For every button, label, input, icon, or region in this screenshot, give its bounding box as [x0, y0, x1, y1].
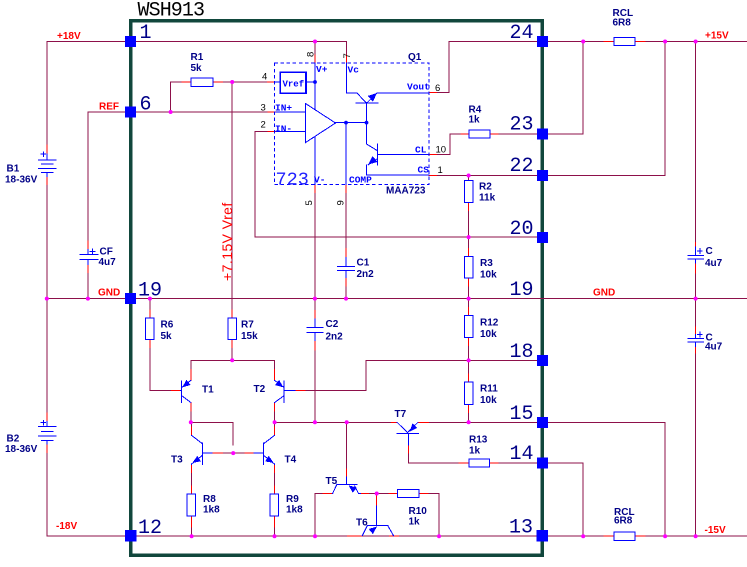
svg-text:R11: R11 — [480, 384, 498, 395]
svg-text:2: 2 — [261, 120, 266, 131]
svg-text:-18V: -18V — [56, 521, 77, 532]
svg-text:15k: 15k — [241, 331, 258, 342]
svg-text:T2: T2 — [254, 384, 266, 395]
svg-text:2n2: 2n2 — [357, 269, 375, 280]
svg-text:T5: T5 — [326, 476, 338, 487]
svg-text:4u7: 4u7 — [705, 342, 723, 353]
svg-text:19: 19 — [138, 279, 162, 302]
svg-text:18-36V: 18-36V — [5, 444, 38, 455]
svg-text:Vref: Vref — [283, 80, 305, 90]
svg-text:Vc: Vc — [348, 65, 360, 76]
svg-text:T6: T6 — [356, 518, 368, 529]
svg-text:R8: R8 — [203, 494, 216, 505]
svg-text:4u7: 4u7 — [99, 257, 117, 268]
svg-text:4: 4 — [262, 72, 267, 83]
svg-text:723: 723 — [276, 170, 309, 191]
svg-text:6R8: 6R8 — [614, 516, 633, 527]
svg-text:1k: 1k — [469, 446, 481, 457]
svg-text:13: 13 — [509, 517, 533, 540]
svg-text:R1: R1 — [191, 52, 204, 63]
svg-text:5k: 5k — [191, 63, 203, 74]
svg-text:10k: 10k — [480, 270, 497, 281]
svg-text:5: 5 — [304, 200, 315, 205]
svg-text:R9: R9 — [286, 494, 299, 505]
svg-text:6: 6 — [435, 83, 440, 94]
svg-text:1k: 1k — [409, 517, 421, 528]
svg-text:C2: C2 — [326, 319, 339, 330]
svg-text:B2: B2 — [7, 434, 20, 445]
svg-text:10: 10 — [436, 145, 447, 156]
svg-text:22: 22 — [510, 155, 534, 178]
svg-text:9: 9 — [336, 200, 347, 205]
svg-text:IN+: IN+ — [275, 103, 292, 114]
svg-text:23: 23 — [510, 114, 534, 137]
svg-text:CS: CS — [418, 165, 430, 176]
svg-text:+18V: +18V — [57, 31, 81, 42]
svg-text:5k: 5k — [161, 331, 173, 342]
svg-text:REF: REF — [99, 102, 119, 113]
svg-text:T4: T4 — [285, 455, 297, 466]
svg-text:14: 14 — [510, 443, 534, 466]
svg-text:12: 12 — [138, 517, 162, 540]
svg-text:18-36V: 18-36V — [5, 175, 38, 186]
svg-text:C: C — [706, 246, 713, 257]
svg-text:T7: T7 — [395, 409, 407, 420]
svg-text:18: 18 — [510, 341, 534, 364]
svg-text:R6: R6 — [161, 320, 174, 331]
svg-text:1k8: 1k8 — [286, 505, 303, 516]
svg-text:CL: CL — [415, 145, 427, 156]
svg-text:R3: R3 — [480, 258, 493, 269]
svg-text:3: 3 — [261, 103, 266, 114]
svg-text:WSH913: WSH913 — [138, 0, 205, 23]
svg-text:R7: R7 — [241, 320, 254, 331]
svg-text:V+: V+ — [316, 64, 328, 75]
svg-text:R2: R2 — [479, 182, 492, 193]
svg-text:1: 1 — [438, 165, 443, 176]
svg-text:6: 6 — [140, 93, 152, 116]
svg-text:19: 19 — [510, 279, 534, 302]
svg-text:R10: R10 — [409, 506, 428, 517]
svg-text:CF: CF — [100, 247, 113, 258]
svg-text:1k8: 1k8 — [203, 505, 220, 516]
svg-text:MAA723: MAA723 — [386, 186, 426, 197]
svg-text:C1: C1 — [357, 258, 370, 269]
svg-text:T1: T1 — [202, 385, 214, 396]
svg-text:1k: 1k — [469, 115, 481, 126]
svg-text:11k: 11k — [479, 193, 496, 204]
svg-text:4u7: 4u7 — [705, 258, 723, 269]
svg-text:T3: T3 — [171, 455, 183, 466]
svg-text:8: 8 — [306, 52, 317, 57]
svg-text:+7.15V Vref: +7.15V Vref — [219, 202, 235, 281]
svg-text:+15V: +15V — [705, 31, 729, 42]
svg-text:IN-: IN- — [275, 123, 292, 134]
svg-text:24: 24 — [510, 22, 534, 45]
svg-text:7: 7 — [342, 53, 353, 58]
svg-text:GND: GND — [98, 288, 120, 299]
svg-text:COMP: COMP — [349, 175, 372, 186]
svg-text:B1: B1 — [7, 164, 20, 175]
svg-text:R12: R12 — [480, 318, 499, 329]
svg-text:Q1: Q1 — [408, 52, 422, 63]
svg-text:R13: R13 — [469, 435, 488, 446]
svg-text:2n2: 2n2 — [326, 331, 344, 342]
svg-text:15: 15 — [510, 403, 534, 426]
svg-text:10k: 10k — [480, 329, 497, 340]
svg-text:20: 20 — [510, 218, 534, 241]
svg-text:V-: V- — [314, 174, 325, 185]
svg-text:1: 1 — [140, 22, 152, 45]
svg-text:-15V: -15V — [705, 525, 726, 536]
svg-text:Vout: Vout — [407, 82, 430, 93]
svg-text:10k: 10k — [480, 395, 497, 406]
svg-text:GND: GND — [593, 288, 615, 299]
svg-text:6R8: 6R8 — [613, 18, 632, 29]
